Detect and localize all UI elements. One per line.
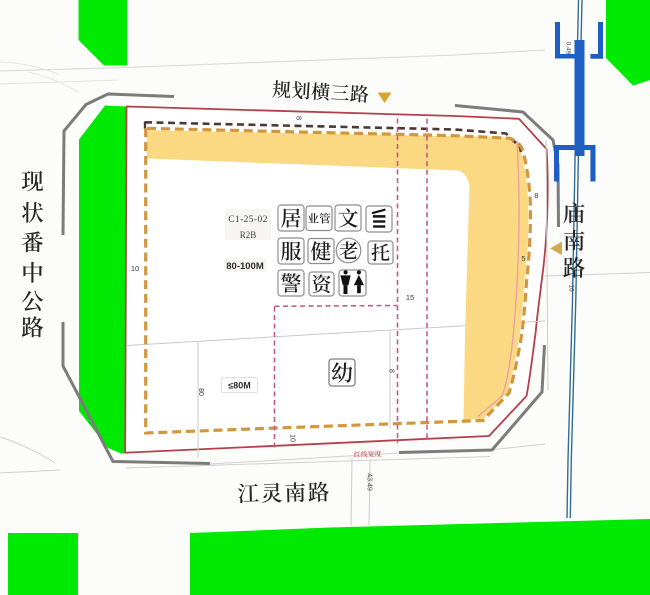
svg-text:8: 8 (388, 369, 395, 373)
svg-text:8: 8 (295, 116, 304, 120)
svg-text:8: 8 (534, 191, 538, 200)
svg-text:C1-25-02: C1-25-02 (228, 215, 268, 225)
svg-text:≤80M: ≤80M (228, 381, 250, 391)
svg-text:0.49: 0.49 (565, 42, 572, 55)
svg-text:16: 16 (568, 284, 575, 292)
svg-text:R2B: R2B (240, 230, 257, 240)
svg-text:10: 10 (131, 264, 139, 273)
svg-text:5: 5 (521, 254, 525, 263)
svg-text:15: 15 (406, 293, 414, 302)
svg-text:10: 10 (289, 434, 296, 442)
svg-text:80: 80 (197, 388, 204, 396)
svg-text:43.49: 43.49 (366, 473, 373, 491)
svg-text:80-100M: 80-100M (226, 261, 264, 272)
